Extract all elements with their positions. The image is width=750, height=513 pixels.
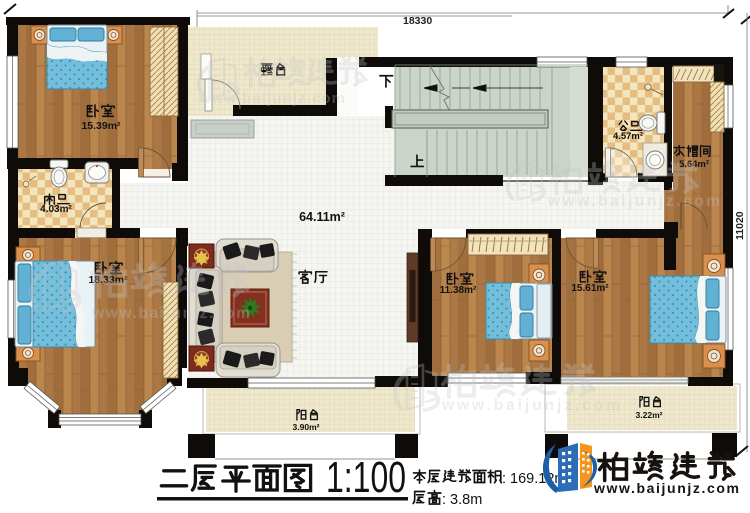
svg-text:4.03m²: 4.03m²	[40, 204, 72, 215]
svg-text:: 3.8m: : 3.8m	[442, 492, 482, 508]
svg-text:11020: 11020	[734, 211, 746, 240]
svg-text:18330: 18330	[403, 15, 432, 27]
svg-text:3.90m²: 3.90m²	[293, 422, 320, 432]
svg-text:www.baijunjz.com: www.baijunjz.com	[198, 90, 345, 107]
svg-text:3.22m²: 3.22m²	[636, 410, 663, 420]
svg-text:64.11m²: 64.11m²	[299, 210, 345, 224]
svg-text:1:100: 1:100	[326, 453, 406, 502]
svg-text:15.61m²: 15.61m²	[571, 283, 609, 294]
svg-text:15.39m²: 15.39m²	[81, 120, 121, 132]
svg-text:11.38m²: 11.38m²	[440, 285, 477, 296]
svg-text:4.57m²: 4.57m²	[613, 131, 643, 142]
